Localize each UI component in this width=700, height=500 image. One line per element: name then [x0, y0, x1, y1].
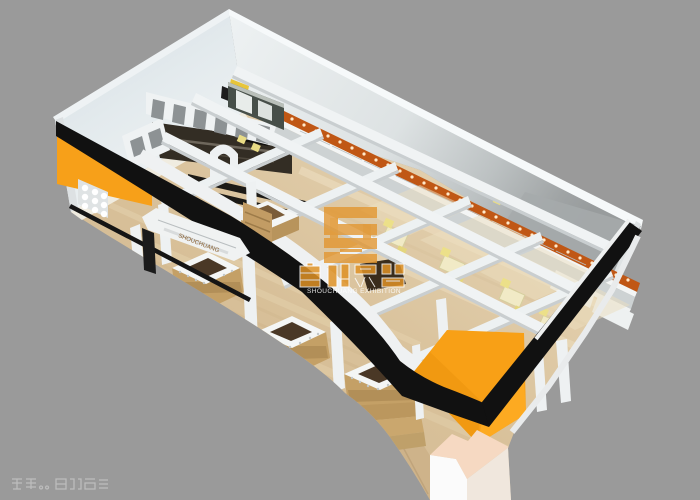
svg-text:SHOUCHUANG EXHIBITION: SHOUCHUANG EXHIBITION — [307, 288, 401, 295]
